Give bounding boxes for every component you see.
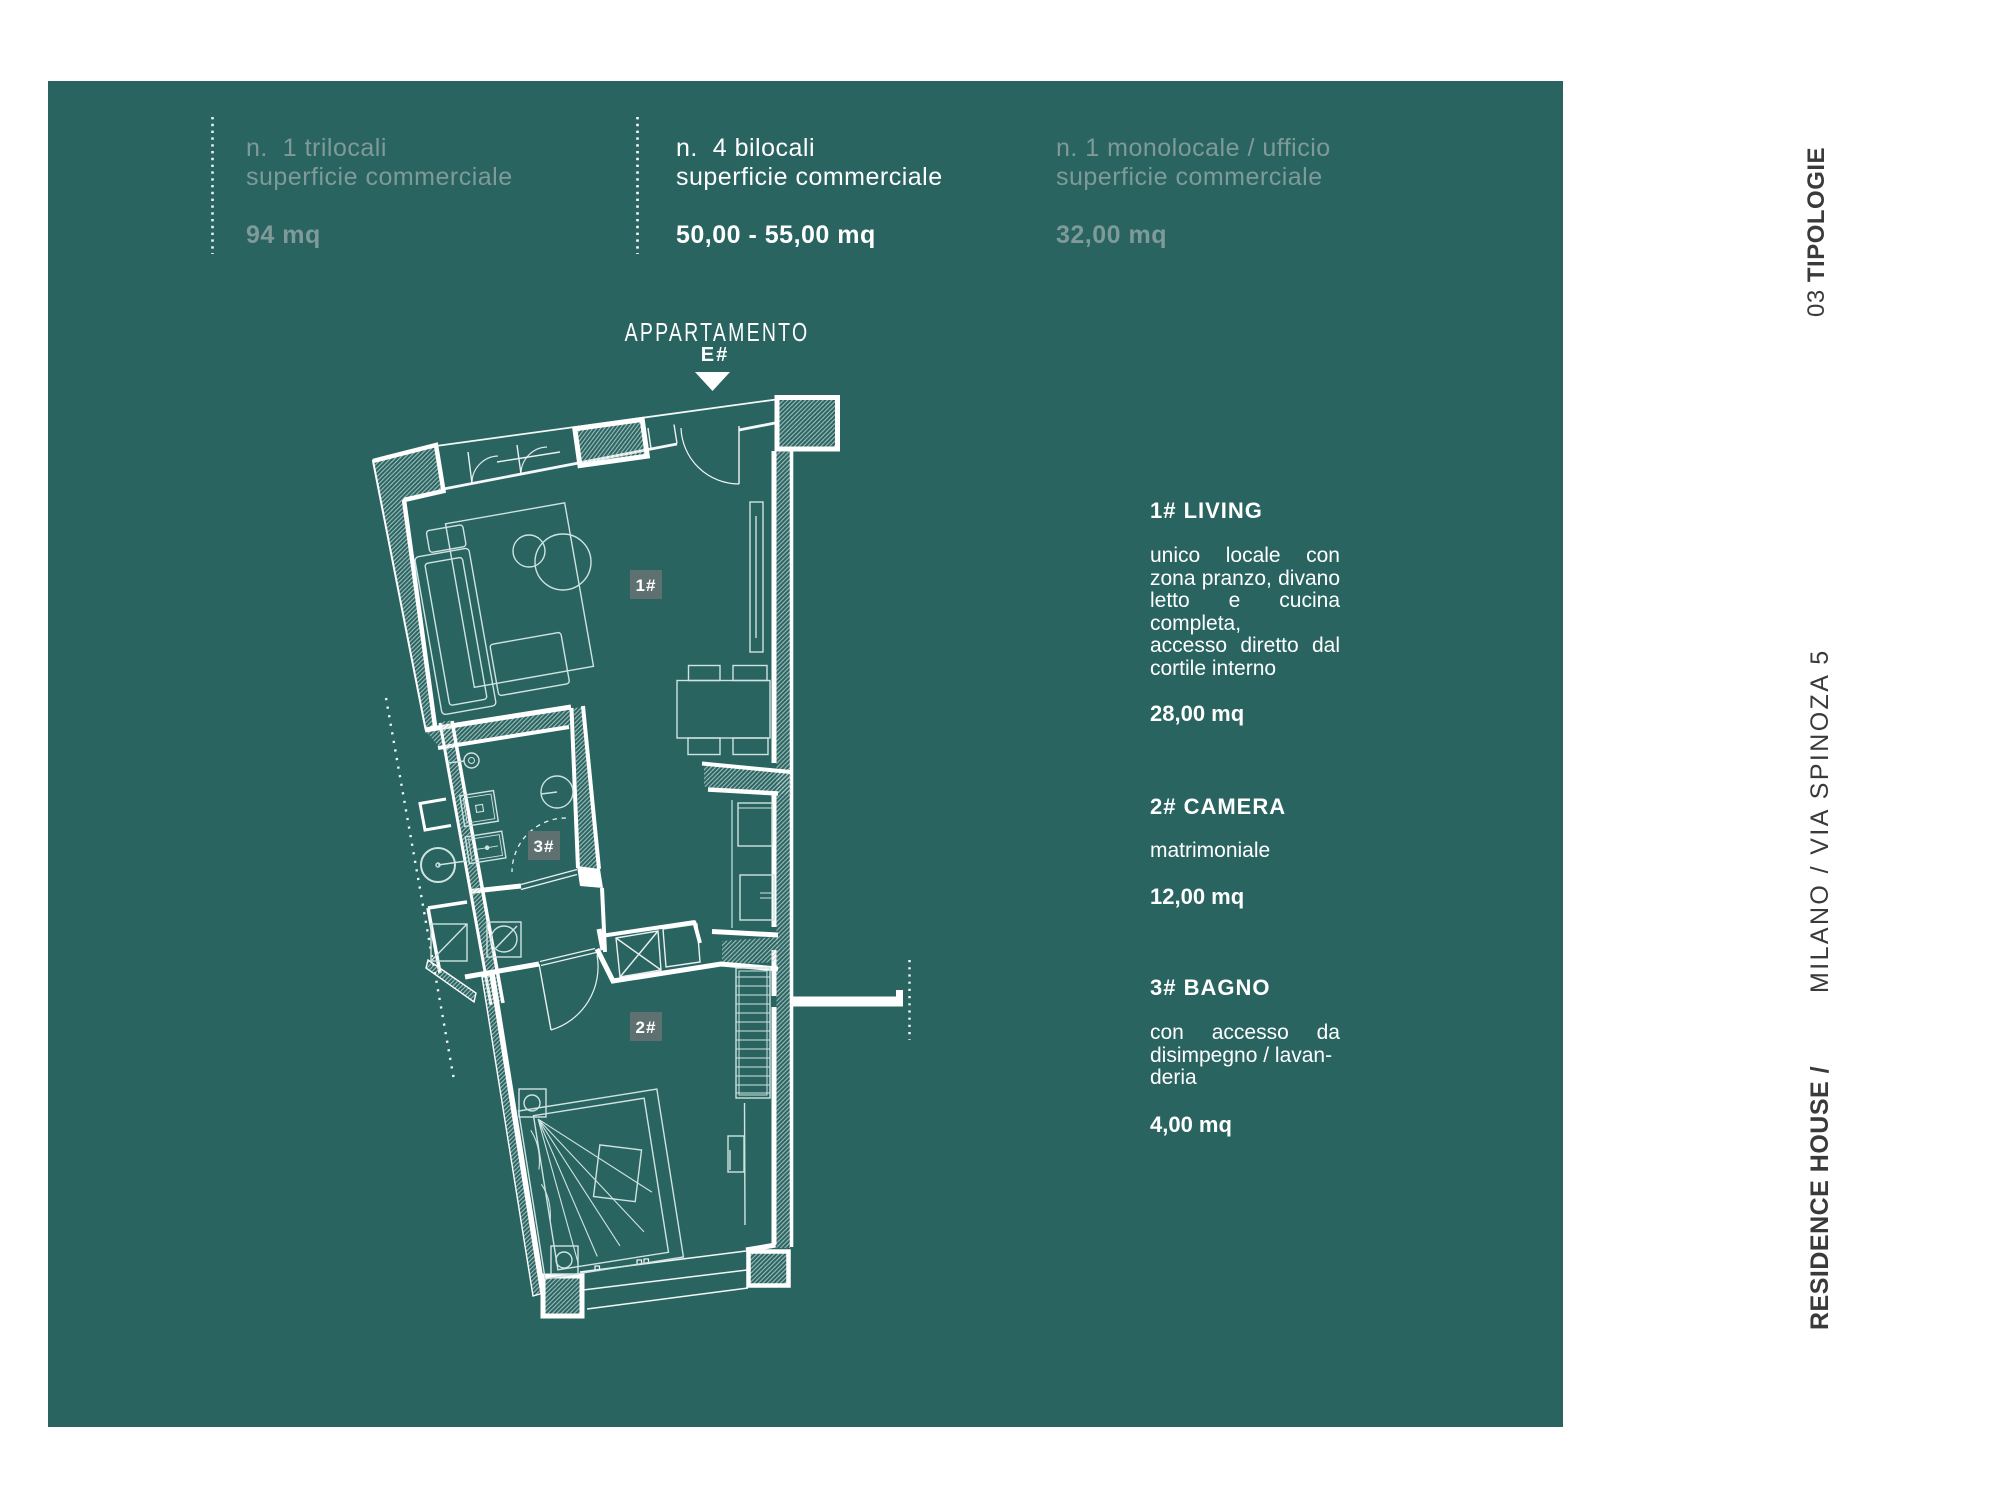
svg-text:1#: 1# bbox=[636, 576, 657, 595]
svg-text:2#: 2# bbox=[636, 1018, 657, 1037]
svg-text:3#: 3# bbox=[534, 837, 555, 856]
